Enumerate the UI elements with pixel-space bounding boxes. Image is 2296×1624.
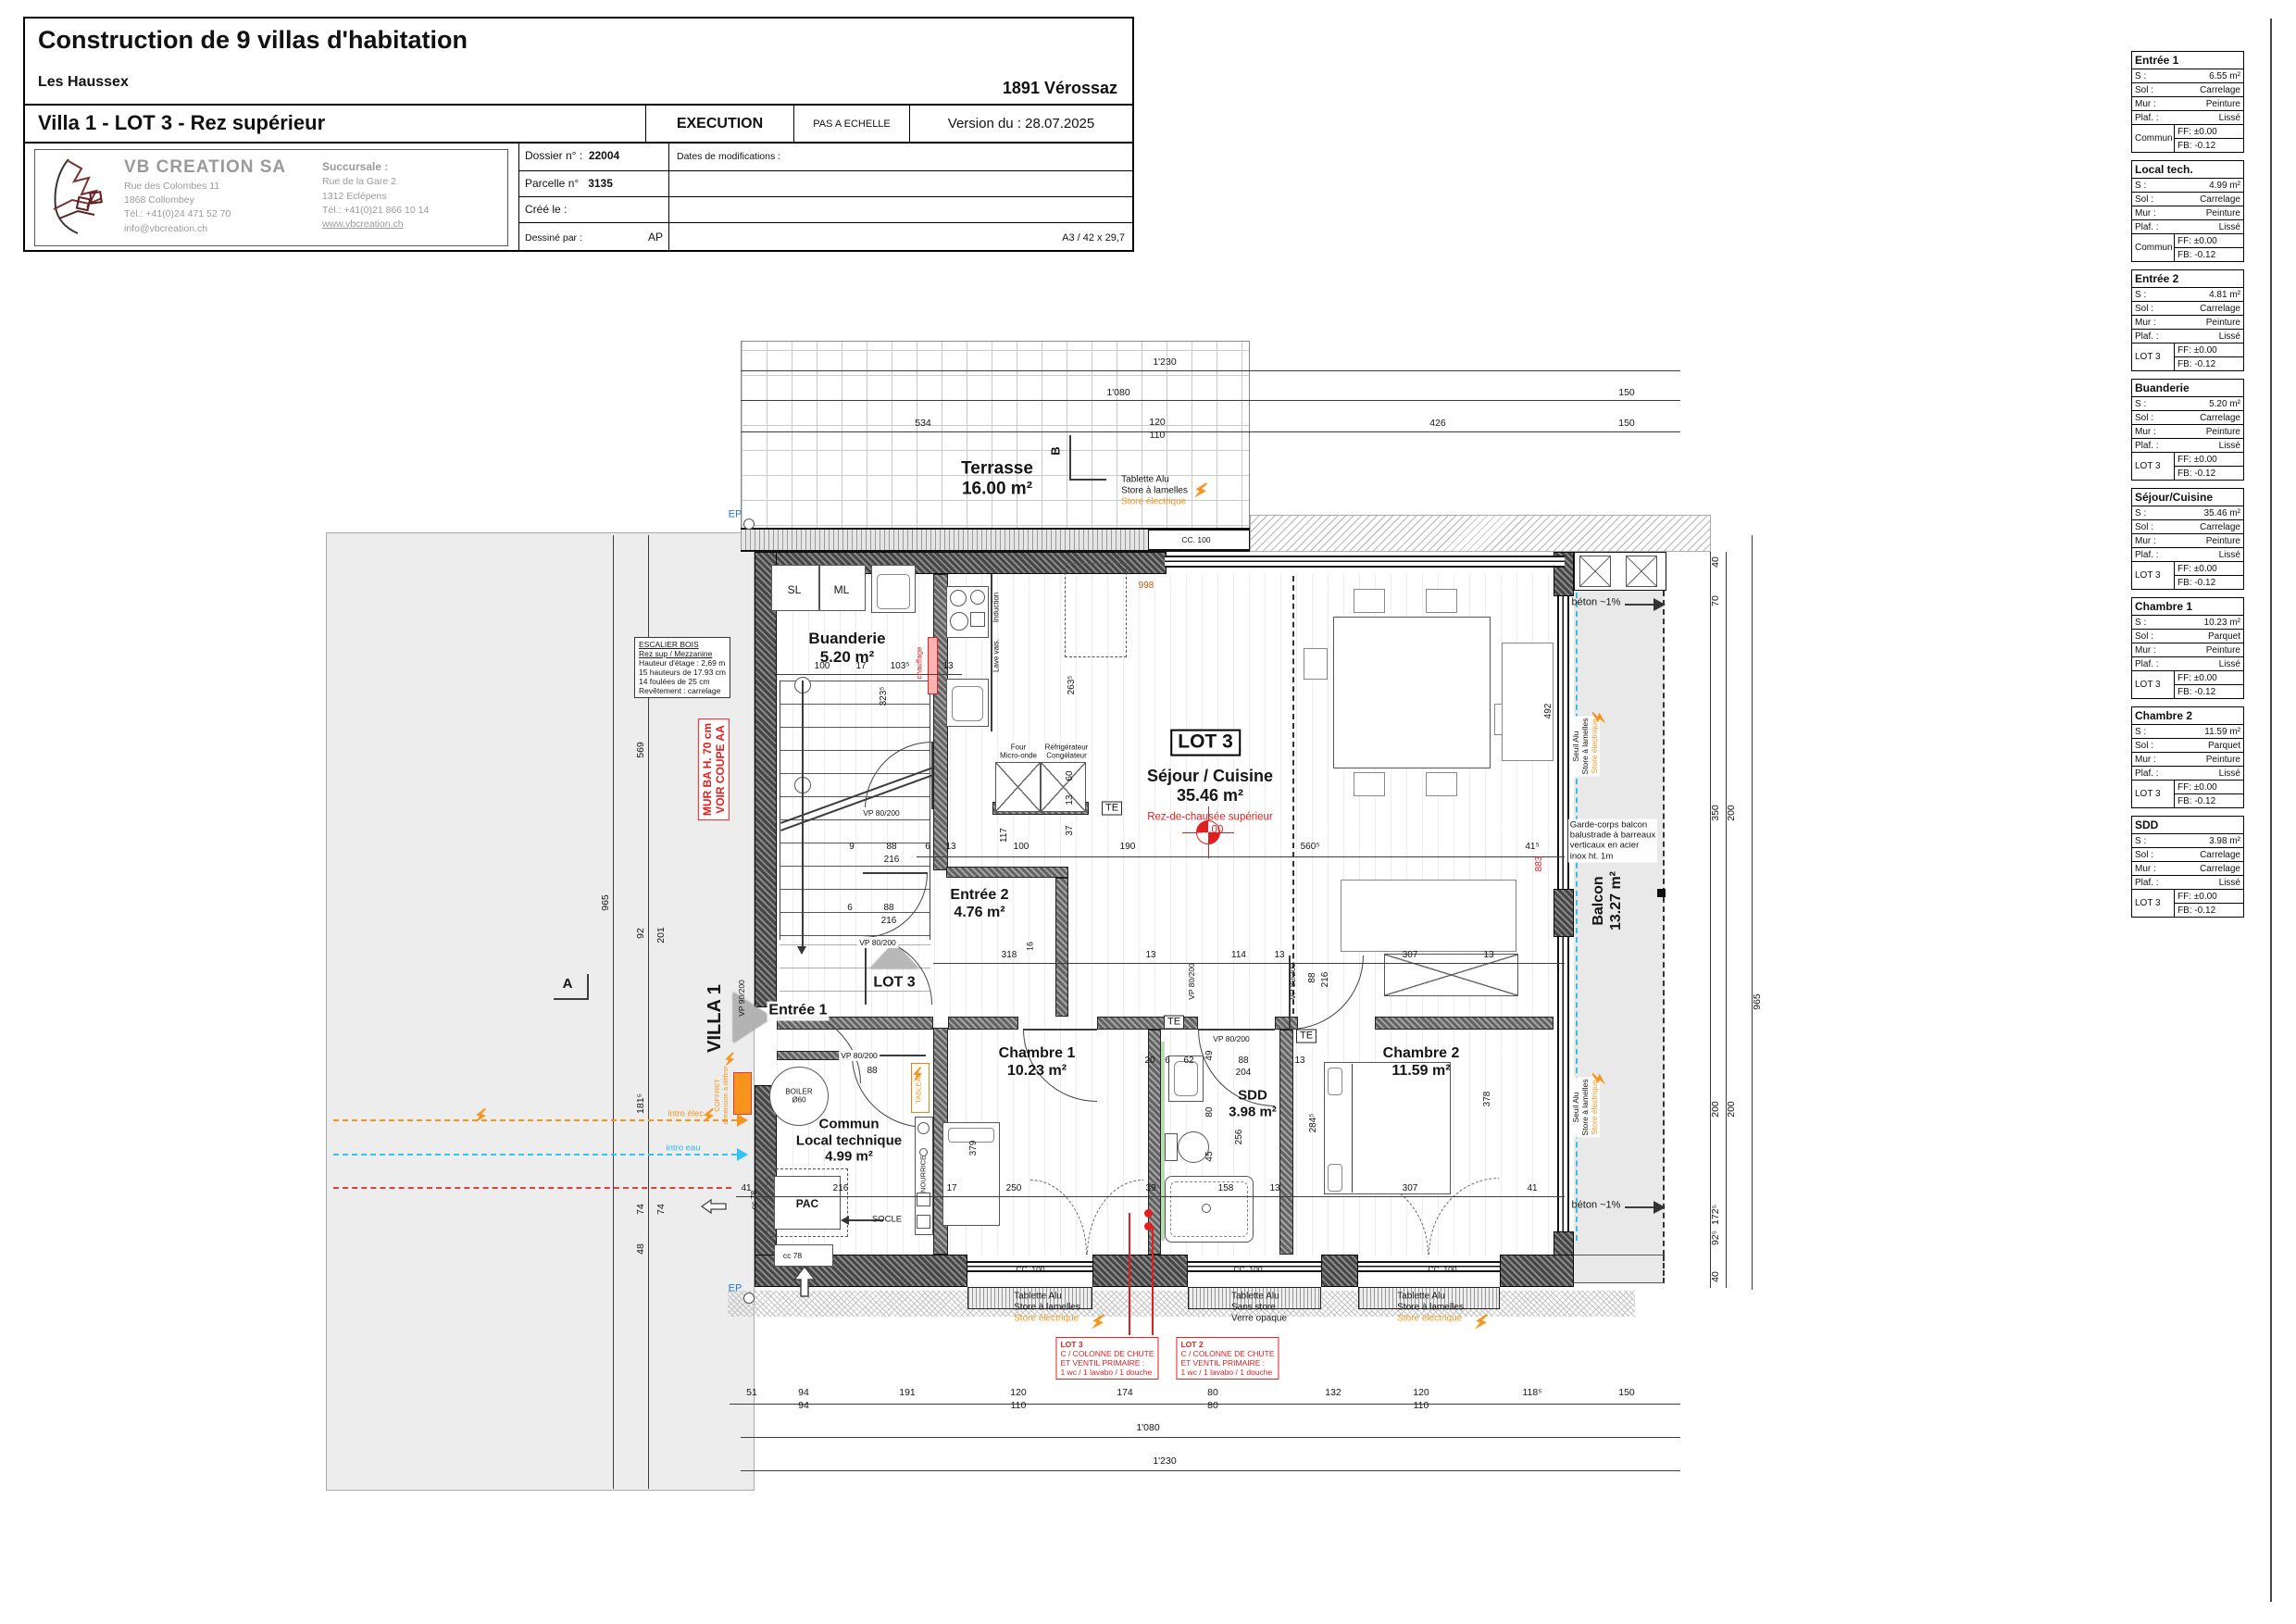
- drawn-row: Dessiné par : AP: [519, 223, 668, 252]
- owner-label: LOT 3: [2132, 453, 2174, 480]
- dim-line: [741, 370, 1680, 371]
- dim: 172⁵: [1710, 1205, 1721, 1225]
- dim: 88: [883, 903, 893, 914]
- dim: 13: [1269, 1183, 1279, 1194]
- circle: [917, 1122, 930, 1134]
- modifications-column: Dates de modifications : A3 / 42 x 29,7: [668, 144, 1132, 252]
- project-location: 1891 Vérossaz: [1003, 79, 1117, 98]
- scale-note: PAS A ECHELLE: [793, 106, 909, 142]
- circle: [1202, 1204, 1211, 1213]
- dim: 150: [1618, 387, 1635, 398]
- dim: 80: [1204, 1106, 1216, 1117]
- dim: 150: [1618, 1387, 1635, 1398]
- dim: 88: [1307, 972, 1318, 982]
- floor-row: Sol :Carrelage: [2132, 83, 2243, 97]
- floor-row: Sol :Parquet: [2132, 739, 2243, 753]
- ep-label-top: EP: [729, 509, 742, 521]
- dim: 120: [1149, 417, 1166, 428]
- slope-arrow-line: [1625, 604, 1656, 606]
- boiler-label: BOILERØ60: [785, 1088, 812, 1106]
- dim: 323⁵: [879, 687, 890, 706]
- intro-eau-label: intro eau: [667, 1143, 701, 1153]
- chute-line: [1129, 1213, 1130, 1335]
- pillow: [1328, 1068, 1342, 1095]
- socle-arrow: [841, 1216, 849, 1225]
- exit-arrow-icon: [792, 1265, 817, 1298]
- dim: 37: [1065, 825, 1076, 835]
- company-name: VB CREATION SA: [124, 157, 286, 178]
- dim: 204: [1236, 1068, 1252, 1079]
- surface-row: S :4.81 m²: [2132, 288, 2243, 302]
- ceiling-row: Plaf. :Lissé: [2132, 876, 2243, 890]
- tablette-note-terrasse: Tablette AluStore à lamellesStore électr…: [1121, 474, 1188, 506]
- appliance-sl: SL: [788, 583, 802, 596]
- door-leaf: [1198, 1029, 1275, 1031]
- section-line: [587, 974, 589, 999]
- ff-level: FF: ±0.00: [2175, 890, 2243, 904]
- dim: 49: [1204, 1050, 1216, 1060]
- ceiling-row: Plaf. :Lissé: [2132, 330, 2243, 344]
- dim: 40: [1710, 1271, 1721, 1282]
- chute-line: [1152, 1226, 1154, 1335]
- dim: 41: [741, 1183, 751, 1194]
- levels-row: Commun FF: ±0.00FB: -0.12: [2132, 234, 2243, 261]
- te-tag: TE: [1296, 1030, 1316, 1043]
- intro-elec-label: intro élec.: [668, 1108, 705, 1118]
- owner-label: Commun: [2132, 125, 2174, 152]
- dim-line: [741, 1437, 1680, 1438]
- dim-line: [736, 1196, 1565, 1197]
- beton-note-top: béton ~1%: [1572, 597, 1621, 609]
- door-tag: VP 80/200: [1187, 963, 1196, 1000]
- lot-axis: [1292, 576, 1294, 1014]
- frigo-label: RéfrigérateurCongélateur: [1045, 743, 1089, 761]
- owner-label: LOT 3: [2132, 344, 2174, 370]
- ff-level: FF: ±0.00: [2175, 453, 2243, 467]
- room-finish-table: Chambre 1 S :10.23 m² Sol :Parquet Mur :…: [2131, 597, 2244, 699]
- dim: 13: [945, 842, 955, 853]
- dim: 94: [798, 1387, 809, 1398]
- partition: [1055, 878, 1068, 1017]
- seuil-note-top: Seuil AluStore à lamellesStore électriqu…: [1570, 717, 1600, 777]
- dim-red: 883: [1534, 856, 1545, 872]
- dim: 100: [815, 661, 830, 672]
- dim: 100: [1014, 842, 1029, 853]
- dim: 181⁵: [635, 1093, 646, 1114]
- nourrice-sq: [917, 1193, 930, 1206]
- dim: 41: [1527, 1183, 1537, 1194]
- coffret-box: [733, 1072, 752, 1115]
- room-label-entree2: Entrée 24.76 m²: [950, 887, 1008, 922]
- te-tag: TE: [1164, 1016, 1184, 1030]
- title-row: Construction de 9 villas d'habitation Le…: [25, 19, 1132, 106]
- balcony-post-dot: [1657, 889, 1666, 897]
- cc100-2: CC. 100: [1233, 1265, 1262, 1274]
- pac-label: PAC: [796, 1197, 818, 1210]
- section-a: A: [563, 976, 573, 993]
- sheet-title: Villa 1 - LOT 3 - Rez supérieur: [38, 111, 325, 135]
- mur-ba-note: MUR BA H. 70 cmVOIR COUPE AA: [698, 718, 730, 820]
- dim: 16: [1026, 942, 1036, 951]
- room-finish-table: Séjour/Cuisine S :35.46 m² Sol :Carrelag…: [2131, 488, 2244, 590]
- burner-sq: [970, 612, 985, 627]
- chair: [1304, 648, 1328, 680]
- slope-arrow-icon: [1653, 1201, 1666, 1214]
- dim: 94: [798, 1400, 809, 1411]
- door-tag: VP 80/200: [1288, 963, 1297, 1000]
- surface-row: S :35.46 m²: [2132, 506, 2243, 520]
- induction-label: Induction: [992, 593, 1000, 622]
- room-table-title: SDD: [2132, 817, 2243, 834]
- dim: 378: [1482, 1092, 1493, 1107]
- dim-line: [917, 856, 1565, 857]
- dim: 74: [655, 1204, 667, 1215]
- dim: 379: [968, 1141, 980, 1156]
- floor-row: Sol :Parquet: [2132, 630, 2243, 643]
- dim: 350: [1710, 805, 1721, 821]
- dim: 88: [886, 842, 896, 853]
- floor-row: Sol :Carrelage: [2132, 193, 2243, 206]
- oven-box: [995, 762, 1041, 812]
- chair: [1354, 589, 1385, 613]
- dim-line: [1752, 535, 1753, 1290]
- owner-label: LOT 3: [2132, 671, 2174, 698]
- tablette-note-3: Tablette AluStore à lamellesStore électr…: [1397, 1291, 1464, 1323]
- company-logo: [41, 154, 117, 239]
- slope-arrow-line: [1625, 1206, 1656, 1208]
- dim: 110: [1414, 1400, 1429, 1411]
- bottom-wall: [1092, 1255, 1188, 1287]
- terrasse-floor: [741, 341, 1250, 552]
- dim: 216: [1320, 972, 1331, 988]
- ff-level: FF: ±0.00: [2175, 781, 2243, 794]
- surface-row: S :11.59 m²: [2132, 725, 2243, 739]
- dim: 39: [1145, 1183, 1155, 1194]
- cc100-terrasse: CC. 100: [1181, 535, 1210, 544]
- dim: 965: [600, 894, 611, 911]
- bed: [1324, 1062, 1451, 1194]
- circle: [950, 590, 967, 606]
- dim: 92: [635, 928, 646, 939]
- company-branch: Succursale : Rue de la Gare 2 1312 Eclép…: [322, 159, 498, 231]
- balcony-post: [1626, 556, 1657, 587]
- dim: 13: [1065, 794, 1076, 805]
- dim: 250: [1006, 1183, 1022, 1194]
- sofa: [1502, 643, 1554, 761]
- ff-level: FF: ±0.00: [2175, 344, 2243, 357]
- levels-row: LOT 3 FF: ±0.00FB: -0.12: [2132, 562, 2243, 589]
- dim: 6: [1165, 1056, 1170, 1067]
- dim: 13: [942, 661, 953, 672]
- partition: [1279, 1030, 1293, 1255]
- sink-inner: [952, 686, 983, 721]
- circle: [950, 612, 968, 631]
- partition: [948, 1017, 1018, 1030]
- version-label: Version du : 28.07.2025: [909, 106, 1132, 142]
- fb-level: FB: -0.12: [2175, 357, 2243, 370]
- lot3-arrow-label: LOT 3: [873, 975, 915, 993]
- ff-level: FF: ±0.00: [2175, 234, 2243, 248]
- dim: 191: [899, 1387, 916, 1398]
- door-tag: VP 80/200: [857, 937, 898, 948]
- sheet-row: Villa 1 - LOT 3 - Rez supérieur EXECUTIO…: [25, 106, 1132, 144]
- ceiling-row: Plaf. :Lissé: [2132, 111, 2243, 125]
- door-leaf: [1023, 1029, 1097, 1031]
- dim-line: [741, 431, 1680, 432]
- levels-row: LOT 3 FF: ±0.00FB: -0.12: [2132, 671, 2243, 698]
- dim: 174: [1117, 1387, 1133, 1398]
- dim: 200: [1726, 805, 1737, 821]
- wall-row: Mur :Peinture: [2132, 206, 2243, 220]
- dim: 560⁵: [1301, 842, 1320, 853]
- dim: 48: [635, 1243, 646, 1255]
- section-line: [554, 998, 589, 1000]
- chauffage-strip: [928, 637, 938, 694]
- room-label-sdd: SDD3.98 m²: [1229, 1087, 1277, 1119]
- left-arrow-icon: [700, 1198, 728, 1215]
- dim: 1'230: [1153, 1455, 1176, 1467]
- ceiling-row: Plaf. :Lissé: [2132, 439, 2243, 453]
- dim: 103⁵: [891, 661, 910, 672]
- room-label-balcon: Balcon13.27 m²: [1591, 871, 1626, 931]
- tablette-note-2: Tablette AluSans storeVerre opaque: [1231, 1291, 1287, 1323]
- dim: 1'080: [1106, 387, 1129, 398]
- left-wall: [755, 552, 777, 1007]
- fb-level: FB: -0.12: [2175, 467, 2243, 480]
- intro-red-line: [333, 1187, 731, 1189]
- section-b: B: [1048, 446, 1062, 455]
- floor-row: Sol :Carrelage: [2132, 302, 2243, 316]
- right-window: [1557, 937, 1569, 1231]
- circle: [743, 1293, 755, 1304]
- dim: 88: [1238, 1056, 1248, 1067]
- dim: 318: [1002, 950, 1017, 961]
- company-address: Rue des Colombes 11 1868 Collombey Tél.:…: [124, 180, 300, 236]
- dim: 534: [915, 418, 931, 429]
- cc100-3: CC. 100: [1428, 1265, 1456, 1274]
- dim: 40: [1710, 556, 1721, 568]
- room-label-entree1: Entrée 1: [767, 1002, 829, 1021]
- owner-label: LOT 3: [2132, 890, 2174, 917]
- wall-row: Mur :Peinture: [2132, 316, 2243, 330]
- te-tag: TE: [1102, 802, 1122, 816]
- dim: 201: [655, 927, 667, 943]
- door-tag: VP 80/200: [839, 1050, 880, 1061]
- room-table-title: Séjour/Cuisine: [2132, 489, 2243, 506]
- red-dot: [1144, 1222, 1153, 1230]
- modifications-row: Dates de modifications :: [669, 144, 1132, 171]
- dim: 216: [884, 855, 900, 866]
- dim-line: [1710, 552, 1711, 1288]
- circle: [743, 518, 755, 530]
- title-block: Construction de 9 villas d'habitation Le…: [23, 17, 1134, 252]
- ceiling-row: Plaf. :Lissé: [2132, 767, 2243, 781]
- ceiling-row: Plaf. :Lissé: [2132, 220, 2243, 234]
- coffret-label: COFFRETdimension à définir: [714, 1067, 730, 1125]
- room-finish-table: Chambre 2 S :11.59 m² Sol :Parquet Mur :…: [2131, 706, 2244, 808]
- dim: 13: [1294, 1056, 1304, 1067]
- wall-row: Mur :Peinture: [2132, 753, 2243, 767]
- dim: 13: [1274, 950, 1284, 961]
- lot3-chute-note: LOT 3C / COLONNE DE CHUTEET VENTIL PRIMA…: [1055, 1337, 1158, 1380]
- wall-row: Mur :Carrelage: [2132, 862, 2243, 876]
- socle-label: SOCLE: [872, 1214, 902, 1224]
- fb-level: FB: -0.12: [2175, 248, 2243, 261]
- dim: 158: [1218, 1183, 1234, 1194]
- room-table-title: Local tech.: [2132, 161, 2243, 179]
- fb-level: FB: -0.12: [2175, 576, 2243, 589]
- room-table-title: Chambre 2: [2132, 707, 2243, 725]
- project-subtitle: Les Haussex: [38, 74, 129, 91]
- wall-row: Mur :Peinture: [2132, 643, 2243, 657]
- dim: 51: [746, 1387, 757, 1398]
- dim: 1'230: [1153, 356, 1176, 368]
- dim: 150: [1618, 418, 1635, 429]
- dim: 9: [849, 842, 855, 853]
- dim: 120: [1010, 1387, 1027, 1398]
- project-title: Construction de 9 villas d'habitation: [38, 26, 468, 55]
- company-box: VB CREATION SA Rue des Colombes 11 1868 …: [34, 149, 508, 246]
- owner-label: LOT 3: [2132, 781, 2174, 807]
- right-wall: [1554, 889, 1574, 937]
- dim: 80: [1207, 1387, 1218, 1398]
- dim: 17: [946, 1183, 956, 1194]
- nourrice-sq: [917, 1215, 930, 1229]
- sheet-frame-line: [2270, 19, 2272, 1602]
- dim: 216: [881, 916, 897, 927]
- dim: 263⁵: [1067, 676, 1078, 695]
- dim-line: [777, 674, 962, 675]
- levels-row: LOT 3 FF: ±0.00FB: -0.12: [2132, 781, 2243, 807]
- dim: 17: [855, 661, 866, 672]
- dim: 13: [1145, 950, 1155, 961]
- dim: 13: [1483, 950, 1493, 961]
- room-table-title: Entrée 1: [2132, 52, 2243, 69]
- sideboard: [1341, 880, 1516, 952]
- dim: 62: [1183, 1056, 1193, 1067]
- paper-format: A3 / 42 x 29,7: [669, 223, 1132, 252]
- ff-level: FF: ±0.00: [2175, 562, 2243, 576]
- lot2-chute-note: LOT 2C / COLONNE DE CHUTEET VENTIL PRIMA…: [1176, 1337, 1279, 1380]
- empty-row: [669, 197, 1132, 223]
- intro-eau-line: [333, 1154, 737, 1156]
- created-row: Créé le :: [519, 197, 668, 223]
- dim: 120: [1413, 1387, 1429, 1398]
- intro-eau-arrow: [737, 1148, 748, 1161]
- dim: 216: [833, 1183, 849, 1194]
- surface-row: S :6.55 m²: [2132, 69, 2243, 83]
- dim: 20: [1144, 1056, 1154, 1067]
- chair: [1354, 772, 1385, 796]
- dim: 6: [925, 842, 930, 853]
- dim: 110: [1011, 1400, 1027, 1411]
- partition: [946, 867, 1068, 878]
- cc78-label: cc 78: [783, 1251, 802, 1260]
- stair-arrow: [797, 946, 806, 955]
- dim-line: [613, 535, 614, 1489]
- wall-row: Mur :Peinture: [2132, 534, 2243, 548]
- dim: 114: [1231, 950, 1246, 961]
- dim: 41⁵: [1525, 842, 1539, 853]
- fb-level: FB: -0.12: [2175, 139, 2243, 152]
- floor-row: Sol :Carrelage: [2132, 848, 2243, 862]
- fb-level: FB: -0.12: [2175, 904, 2243, 917]
- intro-elec-arrow: [737, 1114, 748, 1127]
- four-label: FourMicro-onde: [1000, 743, 1037, 761]
- room-label-chambre1: Chambre 110.23 m²: [999, 1045, 1076, 1081]
- drawing-sheet: Construction de 9 villas d'habitation Le…: [0, 0, 2296, 1624]
- dim: 60: [1065, 770, 1076, 781]
- seuil-line: [1576, 593, 1578, 1241]
- dim: 200: [1726, 1101, 1737, 1118]
- surface-row: S :10.23 m²: [2132, 616, 2243, 630]
- partition: [1375, 1017, 1554, 1030]
- cc100-1: CC. 100: [1016, 1265, 1044, 1274]
- dim: 284⁵: [1308, 1114, 1319, 1133]
- fridge-box: [1041, 762, 1086, 812]
- garde-corps-note: Garde-corps balconbalustrade à barreauxv…: [1568, 819, 1657, 863]
- red-dot: [1144, 1209, 1153, 1218]
- parcelle-row: Parcelle n° 3135: [519, 171, 668, 197]
- villa1-label: VILLA 1: [705, 984, 727, 1053]
- room-finish-table: Entrée 1 S :6.55 m² Sol :Carrelage Mur :…: [2131, 51, 2244, 153]
- stair-note: ESCALIER BOISRez sup / MezzanineHauteur …: [634, 637, 730, 698]
- dim: 117: [999, 828, 1010, 843]
- ceiling-row: Plaf. :Lissé: [2132, 657, 2243, 671]
- lave-vaisselle-label: Lave vais.: [992, 639, 1000, 672]
- dim: 1'080: [1136, 1422, 1159, 1433]
- dim: 70: [1710, 595, 1721, 606]
- fb-level: FB: -0.12: [2175, 685, 2243, 698]
- lot3-main-label: LOT 3: [1170, 730, 1241, 756]
- balcony-bottom-band: [1574, 1255, 1665, 1283]
- door-leaf: [931, 742, 933, 809]
- room-finish-table: Local tech. S :4.99 m² Sol :Carrelage Mu…: [2131, 160, 2244, 262]
- chauffage-label: chauffage: [915, 647, 923, 680]
- dim: 190: [1120, 842, 1136, 853]
- room-label-sejour: Séjour / Cuisine35.46 m²: [1147, 767, 1273, 806]
- section-line: [1069, 479, 1106, 481]
- dim: 569: [635, 742, 646, 758]
- top-window: [1165, 556, 1565, 568]
- owner-label: Commun: [2132, 234, 2174, 261]
- ceiling-row: Plaf. :Lissé: [2132, 548, 2243, 562]
- door-tag: VP 80/200: [861, 807, 902, 818]
- seuil-note-bottom: Seuil AluStore à lamellesStore électriqu…: [1570, 1078, 1600, 1138]
- balcony-post: [1579, 556, 1611, 587]
- door-tag: VP 90/200: [737, 980, 746, 1017]
- surface-row: S :5.20 m²: [2132, 397, 2243, 411]
- dim-line: [933, 963, 1565, 964]
- room-table-title: Chambre 1: [2132, 598, 2243, 616]
- dim: 80: [1207, 1400, 1218, 1411]
- dossier-row: Dossier n° : 22004: [519, 144, 668, 171]
- dining-table: [1333, 617, 1491, 768]
- fb-level: FB: -0.12: [2175, 794, 2243, 807]
- dim: 110: [1150, 430, 1166, 441]
- room-table-title: Buanderie: [2132, 380, 2243, 397]
- status-badge: EXECUTION: [645, 106, 793, 142]
- dim: 492: [1543, 704, 1554, 719]
- sink-inner: [877, 574, 910, 609]
- section-line: [1069, 435, 1071, 480]
- beton-note-bottom: béton ~1%: [1572, 1200, 1621, 1212]
- dim: 307: [1403, 950, 1418, 961]
- empty-row: [669, 171, 1132, 197]
- dim: 88: [867, 1066, 877, 1077]
- room-finish-table: SDD S :3.98 m² Sol :Carrelage Mur :Carre…: [2131, 816, 2244, 918]
- door-tag: VP 80/200: [1211, 1033, 1252, 1044]
